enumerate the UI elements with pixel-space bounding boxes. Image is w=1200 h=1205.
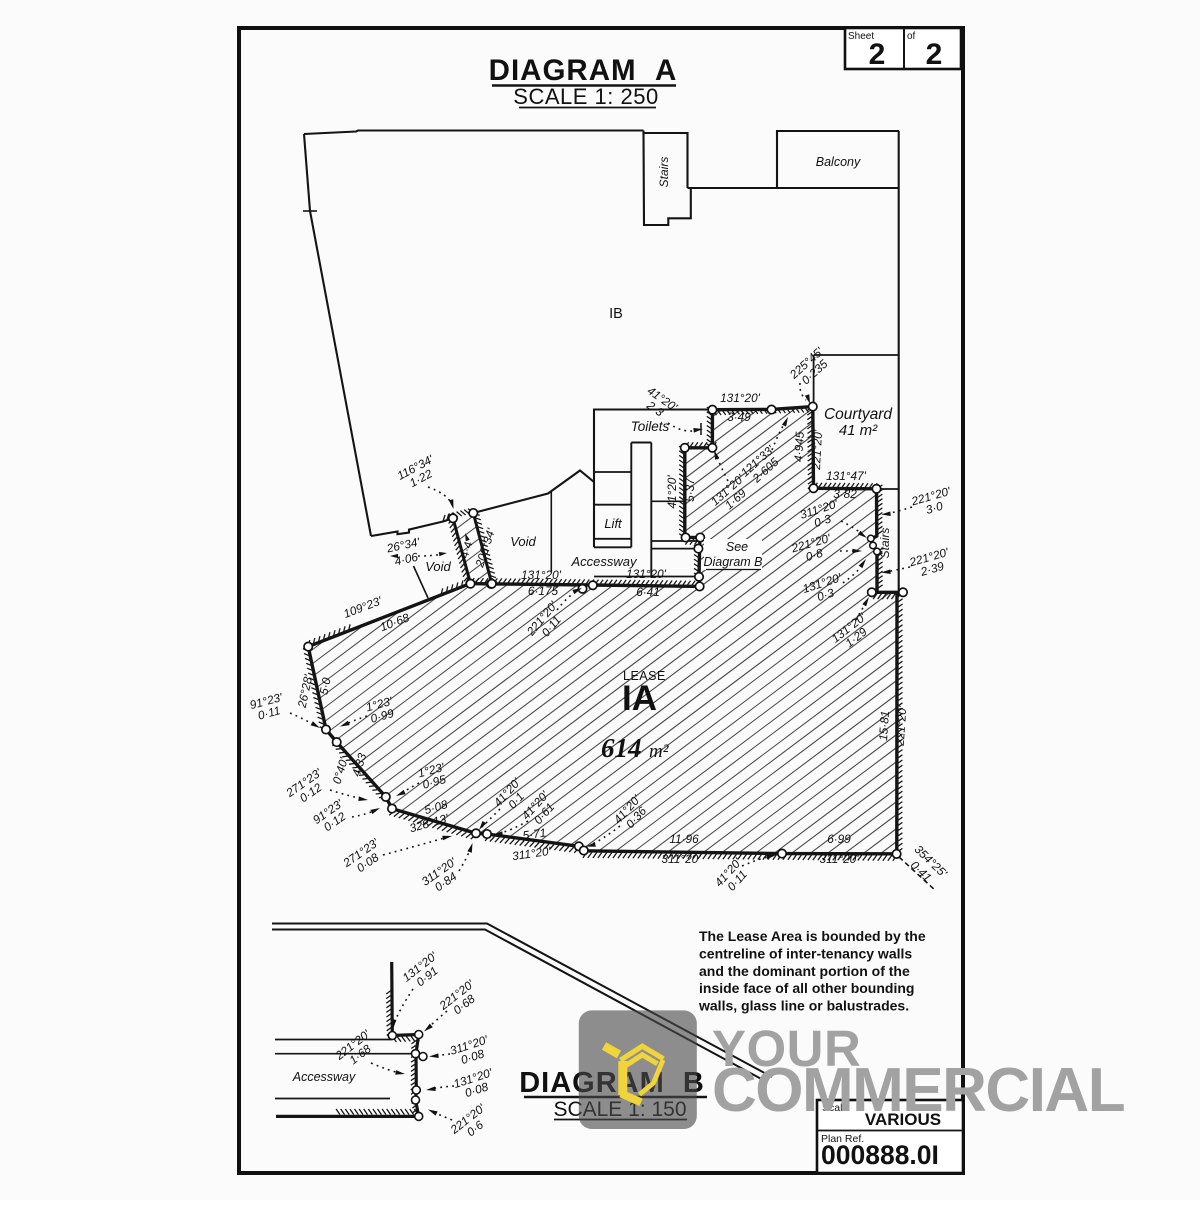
svg-text:m²: m² <box>649 741 669 762</box>
svg-text:DIAGRAM A: DIAGRAM A <box>489 54 678 87</box>
svg-text:6·41: 6·41 <box>636 585 660 599</box>
svg-text:221°20': 221°20' <box>893 705 910 747</box>
svg-text:2: 2 <box>869 38 886 71</box>
svg-text:11·96: 11·96 <box>669 832 699 846</box>
svg-text:000888.0I: 000888.0I <box>821 1140 939 1170</box>
svg-text:131°20': 131°20' <box>720 391 761 405</box>
svg-text:COMMERCIAL: COMMERCIAL <box>712 1056 1124 1125</box>
svg-text:41 m²: 41 m² <box>839 422 878 439</box>
svg-text:and the dominant portion of th: and the dominant portion of the <box>699 963 910 979</box>
svg-text:IA: IA <box>622 679 657 718</box>
svg-text:inside face of all other bound: inside face of all other bounding <box>699 980 914 996</box>
svg-text:131°20': 131°20' <box>521 568 562 582</box>
svg-text:of: of <box>907 31 916 42</box>
svg-text:5·37: 5·37 <box>683 478 697 502</box>
svg-text:walls, glass line or balustrad: walls, glass line or balustrades. <box>698 998 909 1014</box>
svg-text:41°20': 41°20' <box>665 475 679 509</box>
svg-text:614: 614 <box>601 733 642 763</box>
svg-text:3·82: 3·82 <box>833 487 857 501</box>
svg-text:Accessway: Accessway <box>292 1070 356 1084</box>
svg-text:3·49: 3·49 <box>727 410 751 424</box>
svg-text:6·99: 6·99 <box>827 832 851 846</box>
svg-text:The Lease Area is bounded by t: The Lease Area is bounded by the <box>699 928 926 944</box>
svg-text:311°20': 311°20' <box>662 852 702 866</box>
svg-text:221°20': 221°20' <box>809 429 825 471</box>
svg-text:Toilets: Toilets <box>631 419 670 434</box>
svg-text:centreline of inter-tenancy wa: centreline of inter-tenancy walls <box>699 945 912 961</box>
svg-text:311°20': 311°20' <box>820 852 860 866</box>
svg-text:131°20': 131°20' <box>626 567 667 581</box>
svg-text:6·175: 6·175 <box>528 584 559 598</box>
svg-text:See: See <box>726 540 748 554</box>
svg-text:4·945: 4·945 <box>791 431 807 462</box>
svg-text:2: 2 <box>926 38 943 71</box>
svg-text:Lift: Lift <box>604 516 623 531</box>
svg-text:15·81: 15·81 <box>876 710 892 741</box>
svg-text:131°47': 131°47' <box>826 469 867 483</box>
svg-text:IB: IB <box>609 306 623 322</box>
svg-text:Diagram B: Diagram B <box>703 555 762 569</box>
svg-text:Balcony: Balcony <box>816 155 861 169</box>
svg-text:SCALE 1: 250: SCALE 1: 250 <box>513 84 658 109</box>
svg-text:Void: Void <box>425 559 451 574</box>
svg-text:Void: Void <box>510 534 536 549</box>
svg-text:Stairs: Stairs <box>657 157 671 188</box>
svg-text:Courtyard: Courtyard <box>824 406 893 423</box>
